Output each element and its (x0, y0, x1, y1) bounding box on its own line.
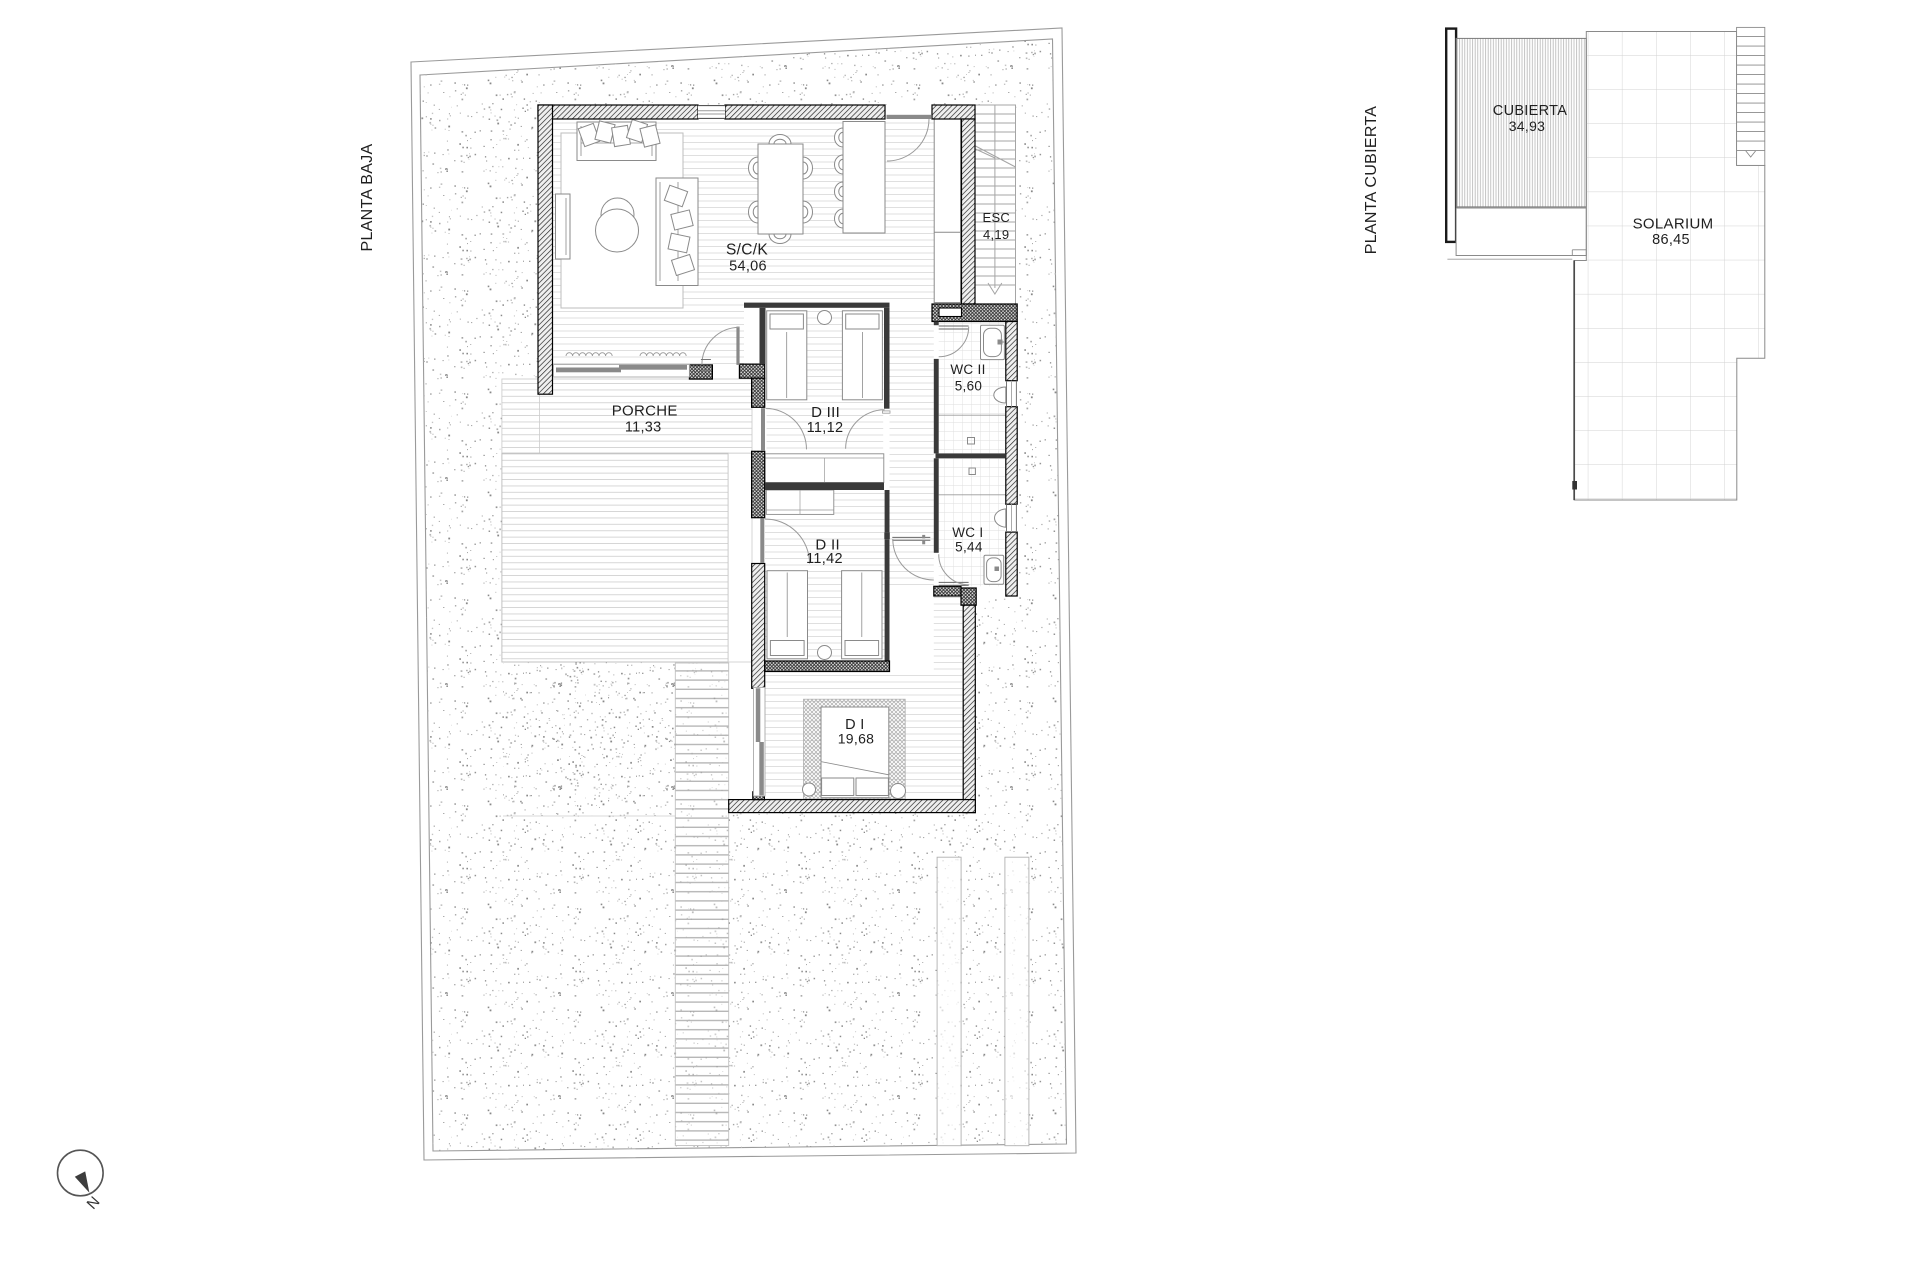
svg-text:S/C/K: S/C/K (726, 242, 768, 259)
svg-text:WC II: WC II (950, 362, 985, 377)
svg-text:5,44: 5,44 (955, 540, 983, 555)
svg-text:11,33: 11,33 (625, 420, 662, 436)
svg-text:19,68: 19,68 (838, 731, 875, 747)
svg-text:PLANTA BAJA: PLANTA BAJA (359, 144, 376, 252)
svg-text:86,45: 86,45 (1652, 232, 1690, 248)
svg-text:34,93: 34,93 (1509, 118, 1546, 134)
svg-text:PLANTA CUBIERTA: PLANTA CUBIERTA (1363, 106, 1380, 255)
svg-text:ESC: ESC (982, 210, 1010, 225)
svg-text:D III: D III (811, 404, 840, 421)
svg-text:PORCHE: PORCHE (612, 403, 678, 420)
svg-text:4,19: 4,19 (983, 227, 1010, 242)
svg-text:SOLARIUM: SOLARIUM (1633, 216, 1714, 233)
svg-text:11,12: 11,12 (807, 420, 844, 436)
svg-text:54,06: 54,06 (729, 259, 767, 275)
svg-text:CUBIERTA: CUBIERTA (1493, 103, 1567, 119)
svg-text:WC I: WC I (952, 525, 983, 540)
svg-text:11,42: 11,42 (806, 551, 843, 567)
svg-text:5,60: 5,60 (955, 379, 982, 394)
